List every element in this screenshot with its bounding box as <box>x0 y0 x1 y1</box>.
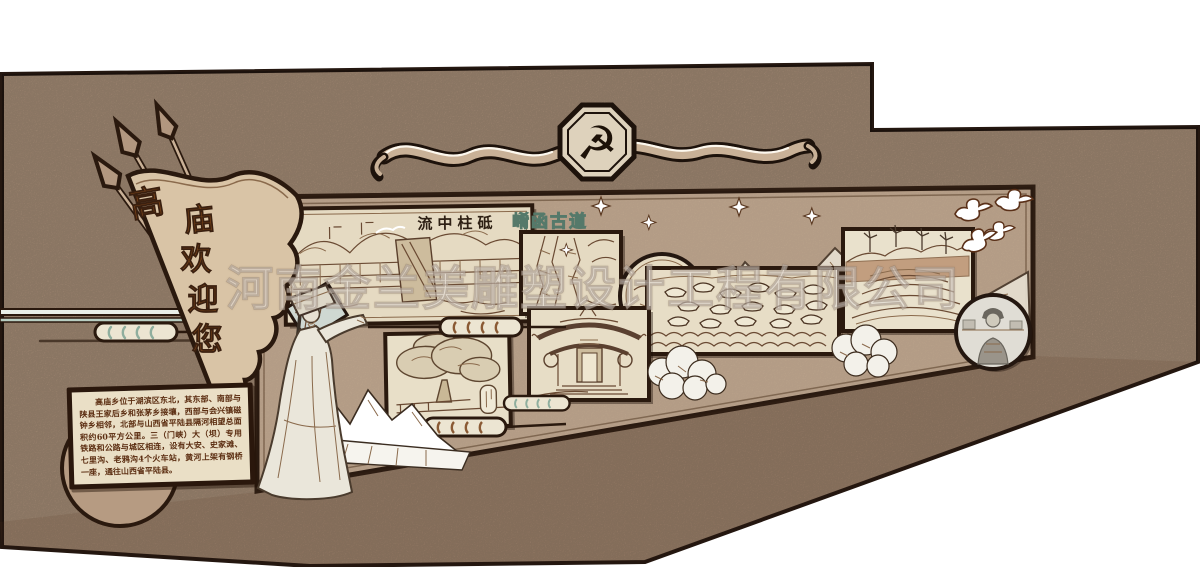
flag-char: 高 <box>127 181 167 226</box>
ancient-road-frame <box>521 232 625 318</box>
design-canvas: ☭ 流中柱砥 崤函古道 <box>0 0 1200 567</box>
cloud-scroll-bar-temple <box>504 396 570 410</box>
flag-char: 庙 <box>182 200 217 239</box>
flag-char: 迎 <box>188 282 219 318</box>
temple-frame <box>529 308 653 404</box>
flag-char: 欢 <box>180 242 213 278</box>
intro-paragraph: 高庙乡位于湖滨区东北，其东部、南部与陕县王家后乡和张茅乡接壤，西部与会兴镇磁钟乡… <box>79 393 243 479</box>
hammer-and-sickle-icon: ☭ <box>576 116 617 170</box>
party-emblem-medallion: ☭ <box>560 105 634 179</box>
ancient-road-title: 崤函古道 <box>512 211 588 232</box>
dam-title: 流中柱砥 <box>417 214 497 233</box>
farmer-portrait-photo <box>956 295 1033 372</box>
flag-char: 您 <box>192 322 223 358</box>
intro-text-panel: 高庙乡位于湖滨区东北，其东部、南部与陕县王家后乡和张茅乡接壤，西部与会兴镇磁钟乡… <box>67 382 256 489</box>
ferry-boats-frame <box>647 268 843 358</box>
